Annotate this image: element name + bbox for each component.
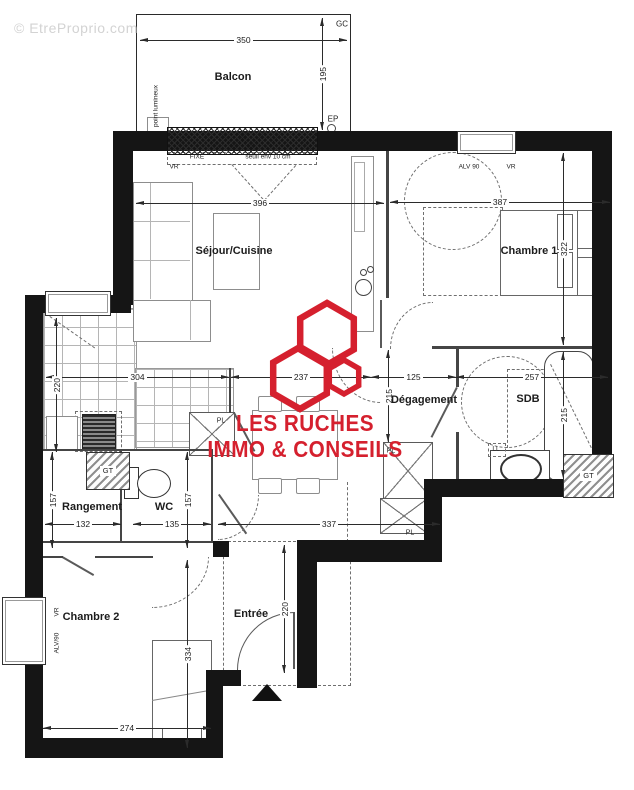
vr-label-sejour: VR xyxy=(169,164,178,171)
room-label-rangement: Rangement xyxy=(62,501,122,513)
room-label-balcon: Balcon xyxy=(215,71,252,83)
wall-segment xyxy=(456,432,459,480)
ll-label: LL xyxy=(492,446,499,453)
room-label-wc: WC xyxy=(155,501,173,513)
entrance-arrow-icon xyxy=(252,684,282,701)
dim-chambre2-depth: 334 xyxy=(182,560,193,748)
gt-duct-right: GT xyxy=(563,454,614,498)
wall-segment xyxy=(113,131,133,305)
dim-entree-depth: 220 xyxy=(279,545,290,673)
agency-logo-hexagons-icon xyxy=(252,292,370,414)
balcony-door-window xyxy=(167,127,318,155)
dim-kitchen-width: 304 xyxy=(46,372,229,383)
agency-logo-line1: LES RUCHES xyxy=(202,410,409,436)
chair xyxy=(296,478,320,494)
wall-segment xyxy=(297,540,442,562)
dim-balcony-depth: 195 xyxy=(317,18,328,130)
hall-dashed-line xyxy=(347,482,348,542)
gc-label: GC xyxy=(336,20,348,29)
sofa-cushion-line xyxy=(134,260,190,261)
cooktop-icon xyxy=(82,414,116,450)
door-leaf-rangement xyxy=(62,556,94,576)
room-label-entree: Entrée xyxy=(234,608,268,620)
point-lumineux-label: point lumineux xyxy=(153,85,160,127)
dim-sejour-width: 396 xyxy=(136,198,384,209)
door-leaf xyxy=(380,300,382,348)
floor-plan: © EtreProprio.com point lumineux Balcon … xyxy=(0,0,634,790)
chair xyxy=(258,478,282,494)
wall-segment xyxy=(43,449,213,451)
room-label-degagement: Dégagement xyxy=(391,394,457,406)
door-swing-chambre2 xyxy=(152,557,209,608)
fixe-label: FIXE xyxy=(190,154,204,161)
agency-logo-line2: IMMO & CONSEILS xyxy=(202,436,409,462)
wall-segment xyxy=(223,670,241,686)
vr-label-chambre2: VR xyxy=(54,607,61,616)
agency-logo-text: LES RUCHES IMMO & CONSEILS xyxy=(202,410,409,462)
counter-tap-icon xyxy=(360,269,367,276)
wall-segment xyxy=(25,295,43,758)
pl-label: PL xyxy=(406,530,415,537)
seuil-label: seuil env 10 cm xyxy=(245,154,290,161)
chambre2-window xyxy=(2,597,46,665)
dim-sdb-width: 257 xyxy=(456,372,608,383)
dim-hall-width: 337 xyxy=(218,519,440,530)
kitchen-window xyxy=(45,291,111,316)
chambre1-window xyxy=(457,131,516,154)
dim-wc-width: 135 xyxy=(133,519,211,530)
room-label-chambre2: Chambre 2 xyxy=(63,611,120,623)
balcony-door-swing xyxy=(264,165,296,201)
gt-duct-left: GT xyxy=(86,452,130,490)
toilet-bowl-icon xyxy=(137,469,171,498)
wall-segment xyxy=(211,449,213,543)
watermark: © EtreProprio.com xyxy=(14,20,138,36)
room-label-sdb: SDB xyxy=(516,393,539,405)
counter-shelf xyxy=(354,162,365,232)
dim-rangement-depth: 157 xyxy=(47,452,58,548)
alv90-label-chambre2: ALV/90 xyxy=(54,633,61,654)
dim-kitchen-depth: 220 xyxy=(51,318,62,452)
sofa-chaise xyxy=(133,300,211,342)
door-swing-chambre1 xyxy=(390,302,433,349)
wall-segment xyxy=(386,150,389,298)
room-label-sejour: Séjour/Cuisine xyxy=(195,245,272,257)
wall-segment xyxy=(43,556,63,558)
wall-segment xyxy=(25,738,223,758)
counter-tap-icon xyxy=(367,266,374,273)
dim-balcony-width: 350 xyxy=(140,35,347,46)
door-swing-wc xyxy=(218,495,259,540)
dim-sdb-depth: 215 xyxy=(558,352,569,478)
ep-label: EP xyxy=(328,115,339,124)
wall-segment xyxy=(95,556,153,558)
wall-segment xyxy=(213,541,229,557)
sofa-chaise-line xyxy=(190,300,191,340)
entry-door-leaf xyxy=(293,612,295,669)
dim-chambre1-width: 387 xyxy=(390,197,610,208)
dim-chambre1-depth: 322 xyxy=(558,153,569,345)
dim-wc-depth: 157 xyxy=(182,452,193,548)
vr-label-chambre1: VR xyxy=(506,164,515,171)
wall-segment xyxy=(206,670,223,756)
room-label-chambre1: Chambre 1 xyxy=(501,245,558,257)
alv90-label-chambre1: ALV 90 xyxy=(459,164,480,171)
sofa-cushion-line xyxy=(134,221,190,222)
wall-segment xyxy=(592,131,612,497)
dim-rangement-width: 132 xyxy=(45,519,121,530)
wardrobe-dashed xyxy=(423,207,503,296)
balcony-door-swing xyxy=(231,164,263,200)
wall-segment xyxy=(297,540,317,688)
